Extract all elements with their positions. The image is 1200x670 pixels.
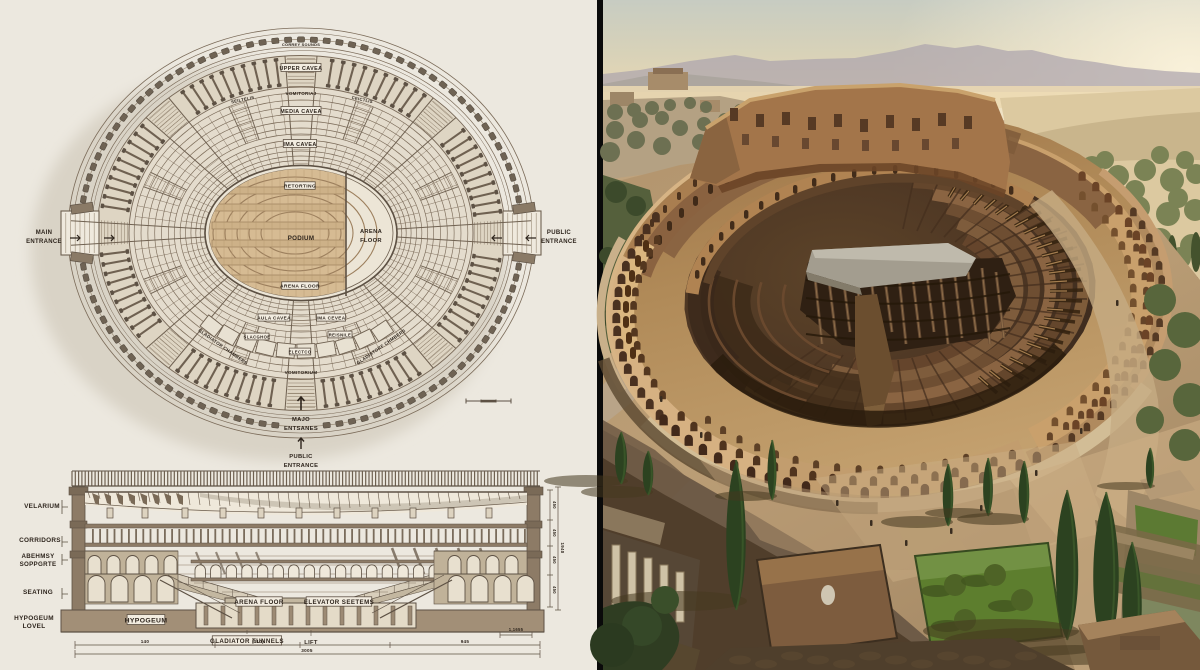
svg-text:1,1655: 1,1655 — [509, 627, 524, 632]
svg-text:MEDIA CAVEA: MEDIA CAVEA — [280, 109, 322, 115]
svg-text:PUBLIC: PUBLIC — [289, 454, 313, 460]
svg-text:VELARIUM: VELARIUM — [24, 503, 60, 510]
svg-text:RETORTING: RETORTING — [284, 184, 316, 190]
svg-text:VOMITORIAJ: VOMITORIAJ — [286, 91, 317, 96]
svg-text:(110): (110) — [252, 639, 264, 644]
svg-text:ENTSANES: ENTSANES — [284, 426, 318, 432]
svg-text:MAIN: MAIN — [36, 230, 53, 236]
svg-text:ELECTCO: ELECTCO — [289, 349, 312, 354]
svg-text:LOVEL: LOVEL — [23, 623, 46, 630]
svg-text:PODIUM: PODIUM — [288, 235, 315, 242]
svg-text:ABEHMSY: ABEHMSY — [21, 553, 55, 560]
svg-text:ARENA FLOOR: ARENA FLOOR — [234, 599, 284, 606]
svg-text:3005: 3005 — [301, 648, 313, 653]
svg-text:IMA CEVEA: IMA CEVEA — [317, 316, 346, 321]
svg-text:SOPPGRTE: SOPPGRTE — [20, 561, 57, 568]
svg-text:VOMITORIUM: VOMITORIUM — [285, 370, 318, 375]
svg-text:ARENA: ARENA — [360, 229, 383, 235]
svg-text:HYPOGEUM: HYPOGEUM — [14, 615, 54, 622]
svg-text:450: 450 — [552, 586, 557, 594]
svg-text:ARENA FLOOR: ARENA FLOOR — [280, 284, 320, 290]
svg-text:450: 450 — [552, 556, 557, 564]
svg-text:1940: 1940 — [560, 543, 565, 554]
svg-text:CORRIDORS: CORRIDORS — [19, 537, 61, 544]
svg-text:REISNILE: REISNILE — [329, 332, 352, 337]
svg-text:FLOOR: FLOOR — [360, 238, 382, 244]
svg-text:SLACGHOE: SLACGHOE — [244, 334, 271, 339]
svg-text:CORREY SOUNDS: CORREY SOUNDS — [282, 42, 320, 47]
svg-text:IMA CAVEA: IMA CAVEA — [283, 142, 316, 148]
svg-text:AULA CAVEA: AULA CAVEA — [257, 316, 291, 321]
svg-text:HYPOGEUM: HYPOGEUM — [125, 617, 168, 624]
svg-text:ENTRANCE: ENTRANCE — [26, 239, 62, 245]
svg-text:945: 945 — [461, 639, 470, 644]
svg-text:450: 450 — [552, 501, 557, 509]
svg-text:PUBLIC: PUBLIC — [547, 230, 571, 236]
svg-text:GLADIATOR TUNNELS: GLADIATOR TUNNELS — [210, 638, 284, 645]
svg-text:450: 450 — [552, 529, 557, 537]
svg-text:UPPER CAVEA: UPPER CAVEA — [280, 66, 323, 72]
svg-text:SEATING: SEATING — [23, 589, 53, 596]
svg-text:ENTRANCE: ENTRANCE — [284, 463, 319, 469]
svg-text:140: 140 — [141, 639, 150, 644]
svg-text:ELEVATOR SEETEMS: ELEVATOR SEETEMS — [304, 599, 374, 606]
svg-text:ENTRANCE: ENTRANCE — [541, 239, 577, 245]
svg-text:MAJO: MAJO — [292, 417, 310, 423]
